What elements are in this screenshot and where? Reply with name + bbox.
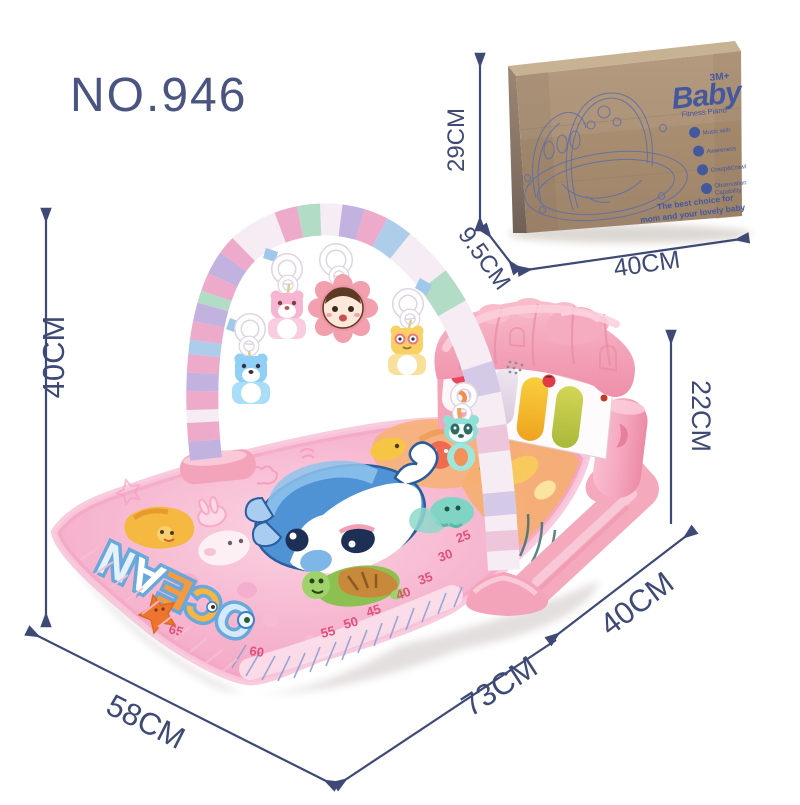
svg-text:NO.946: NO.946 <box>70 69 247 122</box>
svg-text:60: 60 <box>249 643 265 660</box>
svg-text:40CM: 40CM <box>36 316 71 399</box>
svg-text:29CM: 29CM <box>443 108 470 172</box>
svg-text:22CM: 22CM <box>686 380 716 452</box>
